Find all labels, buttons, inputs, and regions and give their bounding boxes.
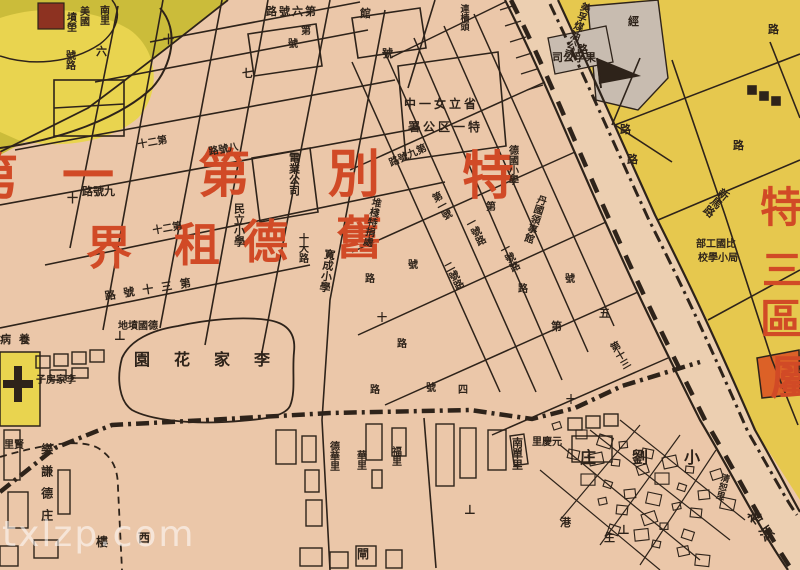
watermark: txlzp.com (2, 514, 196, 555)
hospital-block (0, 352, 40, 426)
orange-building (757, 350, 800, 398)
map-stage: 特別第一舊德租界第特三區屬美國墳塋南里六十號路路號六第七號第號館連檣頭中一女立省… (0, 0, 800, 570)
maroon-block (38, 3, 64, 29)
map-canvas (0, 0, 800, 570)
